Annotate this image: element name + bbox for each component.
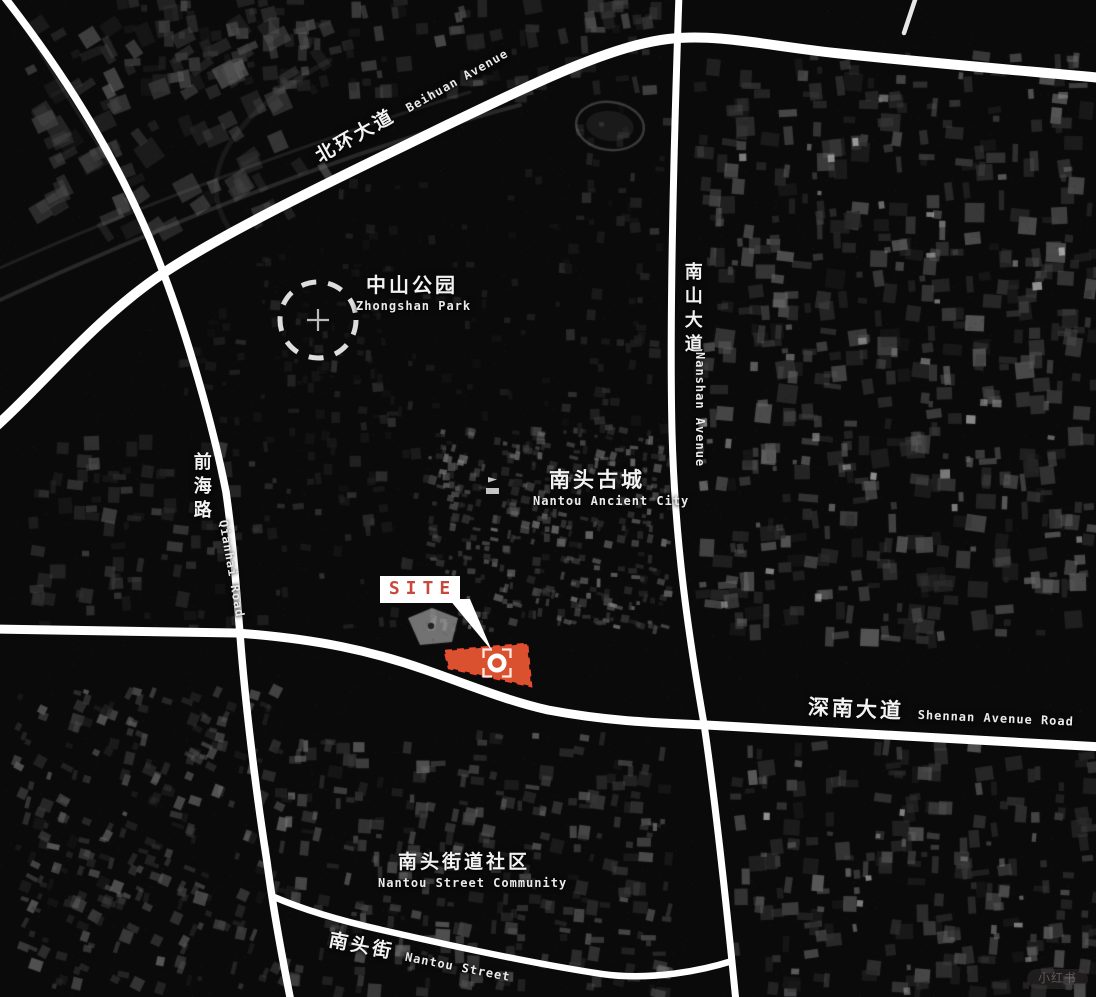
zhongshan-park-marker: [280, 282, 356, 358]
nantou-street-community-label-en: Nantou Street Community: [378, 877, 550, 891]
qianhai-road-label-zh: 前海路: [190, 452, 211, 524]
road-stub-top-right: [904, 0, 916, 33]
road-qianhai-road: [2, 0, 291, 997]
watermark-badge: 小红书: [1027, 969, 1088, 989]
nantou-street-community-label: 南头街道社区 Nantou Street Community: [378, 852, 550, 891]
shennan-avenue-label-zh: 深南大道: [807, 695, 904, 723]
zhongshan-park-label-en: Zhongshan Park: [356, 300, 468, 314]
road-beihuan-avenue: [0, 37, 1096, 428]
nantou-ancient-city-label: 南头古城 Nantou Ancient City: [533, 468, 661, 509]
nanshan-avenue-label-en: Nanshan Avenue: [692, 352, 706, 467]
location-map: 北环大道 Beihuan Avenue 南山大道 Nanshan Avenue …: [0, 0, 1096, 997]
nanshan-avenue-label-zh: 南山大道: [681, 262, 702, 358]
site-label: SITE: [380, 576, 460, 603]
site-area: [445, 599, 531, 686]
zhongshan-park-label: 中山公园 Zhongshan Park: [356, 274, 468, 314]
zhongshan-park-label-zh: 中山公园: [366, 273, 458, 297]
nantou-ancient-city-label-zh: 南头古城: [549, 468, 645, 492]
nantou-ancient-city-label-en: Nantou Ancient City: [533, 495, 661, 509]
site-callout-pointer: [449, 599, 492, 651]
nantou-street-community-label-zh: 南头街道社区: [398, 851, 530, 873]
road-shennan-avenue: [0, 629, 1096, 747]
ancient-city-flag-icon: [486, 477, 499, 494]
park-center-plus-icon: [307, 309, 329, 331]
